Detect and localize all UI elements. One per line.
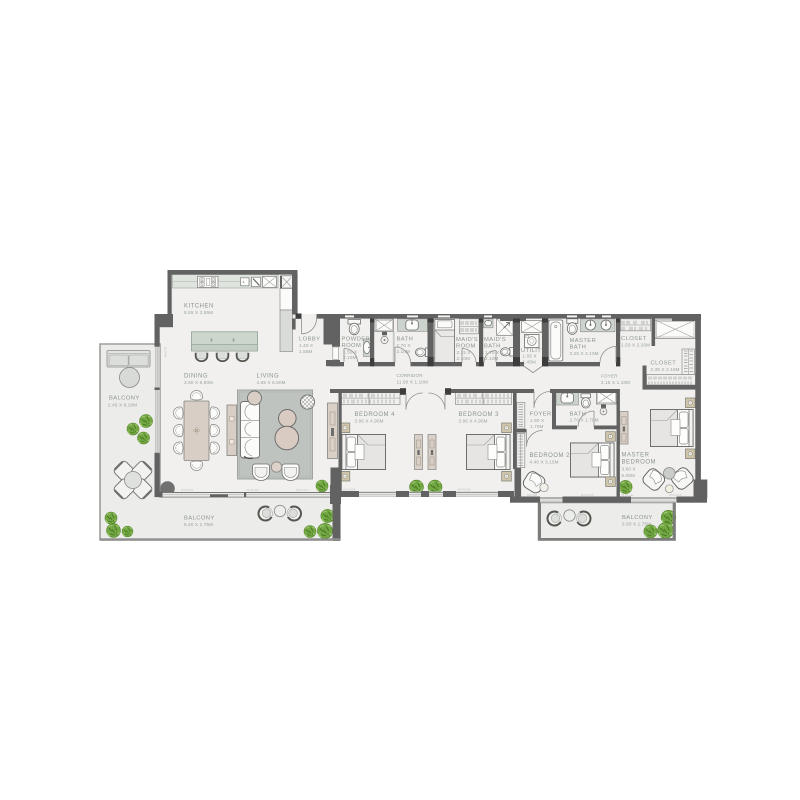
svg-text:3.60 X: 3.60 X xyxy=(622,467,636,472)
svg-text:FOYER: FOYER xyxy=(601,374,618,379)
svg-text:W.04.010: W.04.010 xyxy=(581,493,594,497)
svg-text:W.04.001: W.04.001 xyxy=(181,488,194,492)
svg-text:DR.008: DR.008 xyxy=(527,493,537,497)
svg-text:W.04.004: W.04.004 xyxy=(343,488,356,492)
svg-text:8.40 X 1.75M: 8.40 X 1.75M xyxy=(184,522,213,527)
svg-text:5.55 X 3.55M: 5.55 X 3.55M xyxy=(184,310,213,315)
svg-text:LOBBY: LOBBY xyxy=(299,337,320,343)
svg-text:LIVING: LIVING xyxy=(257,374,280,380)
svg-text:3.25 X 2.10M: 3.25 X 2.10M xyxy=(570,351,599,356)
svg-text:BATH: BATH xyxy=(397,337,414,343)
svg-text:2.15 X: 2.15 X xyxy=(457,350,471,355)
svg-text:MASTER: MASTER xyxy=(570,338,597,344)
svg-text:3.95 X 4.95M: 3.95 X 4.95M xyxy=(459,419,488,424)
svg-text:BEDROOM 4: BEDROOM 4 xyxy=(355,412,396,418)
svg-text:W.04.002: W.04.002 xyxy=(247,488,260,492)
svg-text:3.60 X 6.80M: 3.60 X 6.80M xyxy=(184,380,213,385)
svg-text:W.04.012: W.04.012 xyxy=(669,493,682,497)
svg-text:W.04.011: W.04.011 xyxy=(622,493,635,497)
svg-text:1.90 X: 1.90 X xyxy=(530,418,544,423)
svg-text:2.10M: 2.10M xyxy=(485,356,499,361)
svg-text:MAID'S: MAID'S xyxy=(484,337,506,343)
svg-text:MASTER: MASTER xyxy=(622,453,650,459)
svg-text:MAID'S: MAID'S xyxy=(456,337,478,343)
svg-text:BALCONY: BALCONY xyxy=(622,515,653,521)
svg-text:W.04.005: W.04.005 xyxy=(458,488,471,492)
svg-text:CLOSET: CLOSET xyxy=(621,336,647,342)
svg-text:5.05M: 5.05M xyxy=(622,473,636,478)
svg-text:BEDROOM 3: BEDROOM 3 xyxy=(459,412,500,418)
svg-text:BATH: BATH xyxy=(570,345,587,351)
svg-text:POWDER: POWDER xyxy=(342,337,371,343)
svg-text:2.35 X 2.15M: 2.35 X 2.15M xyxy=(651,367,680,372)
svg-text:1.45M: 1.45M xyxy=(523,360,537,365)
svg-text:BEDROOM 2: BEDROOM 2 xyxy=(530,453,571,459)
svg-text:DINING: DINING xyxy=(184,374,208,380)
svg-text:3.95 X 4.95M: 3.95 X 4.95M xyxy=(355,419,384,424)
svg-text:1.50 X 2.20M: 1.50 X 2.20M xyxy=(621,343,650,348)
svg-text:11.90 X 1.10M: 11.90 X 1.10M xyxy=(397,380,429,385)
svg-text:CLOSET: CLOSET xyxy=(651,361,677,367)
svg-text:2.10M: 2.10M xyxy=(457,356,471,361)
svg-text:BALCONY: BALCONY xyxy=(109,396,140,402)
svg-text:FOYER: FOYER xyxy=(530,412,552,418)
svg-text:1.05 X: 1.05 X xyxy=(523,354,537,359)
svg-text:2.45 X 9.10M: 2.45 X 9.10M xyxy=(108,403,137,408)
svg-text:W.04.003: W.04.003 xyxy=(296,488,309,492)
svg-text:4.40 X 3.15M: 4.40 X 3.15M xyxy=(530,460,559,465)
svg-text:1.70M: 1.70M xyxy=(530,424,544,429)
svg-text:ROOM: ROOM xyxy=(342,343,362,349)
svg-text:2.15 X 1.10M: 2.15 X 1.10M xyxy=(601,380,630,385)
svg-text:2.10M: 2.10M xyxy=(343,355,357,360)
svg-text:CORRIDOR: CORRIDOR xyxy=(397,373,424,378)
svg-text:BALCONY: BALCONY xyxy=(184,516,215,522)
svg-text:4.65 X 6.80M: 4.65 X 6.80M xyxy=(257,380,286,385)
svg-text:W.ODW: W.ODW xyxy=(164,347,168,358)
svg-text:KITCHEN: KITCHEN xyxy=(184,304,214,310)
svg-text:1.55M: 1.55M xyxy=(299,349,313,354)
svg-text:BEDROOM: BEDROOM xyxy=(622,460,657,466)
svg-text:BATH: BATH xyxy=(484,344,501,350)
svg-text:1.40 X: 1.40 X xyxy=(299,343,313,348)
